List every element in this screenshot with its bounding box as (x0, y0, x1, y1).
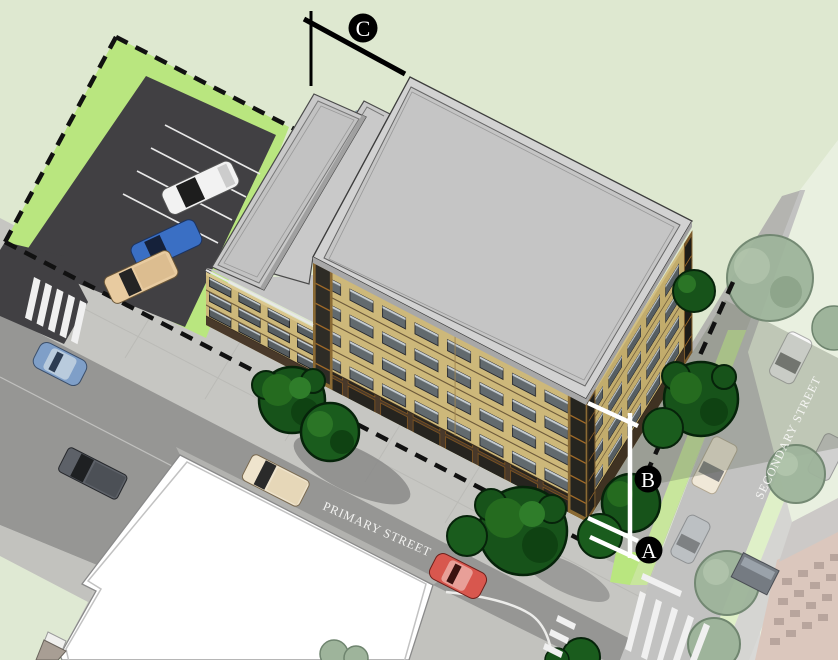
svg-text:C: C (356, 16, 371, 41)
svg-text:A: A (641, 539, 657, 563)
svg-text:B: B (641, 468, 655, 492)
